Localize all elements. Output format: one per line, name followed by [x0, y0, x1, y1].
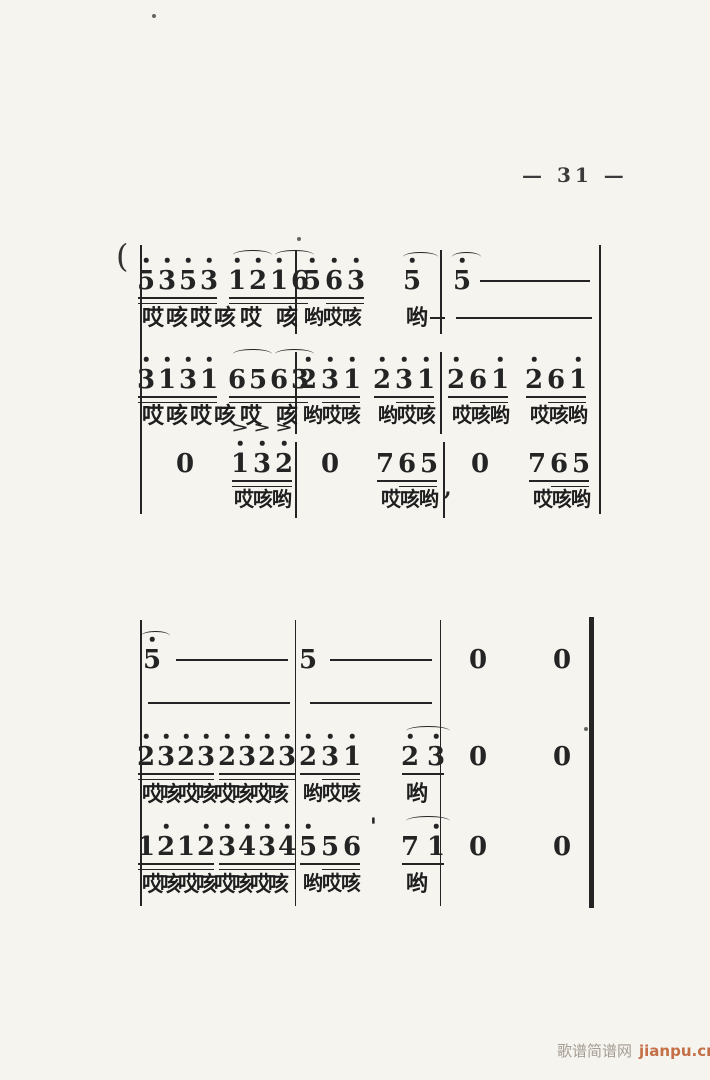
- octave-dot: [165, 357, 170, 362]
- note-digit: 6: [469, 367, 487, 393]
- octave-dot: [454, 357, 459, 362]
- rest-zero: 0: [471, 451, 489, 477]
- note-digit: 5: [179, 268, 197, 294]
- note-digit: 5: [572, 451, 590, 477]
- slur-arc: [233, 349, 272, 359]
- note-digit: 1: [137, 834, 155, 860]
- note-digit: 4: [278, 834, 296, 860]
- octave-dot: [498, 357, 503, 362]
- octave-dot: [424, 357, 429, 362]
- beam-underline: [448, 396, 508, 398]
- octave-dot: [576, 357, 581, 362]
- beam-underline: [304, 297, 364, 299]
- watermark-site-name: 歌谱简谱网: [557, 1042, 632, 1060]
- measure-barline: [295, 442, 297, 518]
- note-digit: 2: [275, 451, 293, 477]
- beam-underline: [138, 396, 217, 398]
- octave-dot: [165, 258, 170, 263]
- breath-mark: ,: [444, 477, 452, 499]
- beam-underline: [526, 396, 586, 398]
- octave-dot: [402, 357, 407, 362]
- note-digit: 5: [299, 834, 317, 860]
- note-digit: 3: [321, 367, 339, 393]
- tie-arc: [452, 252, 481, 262]
- lyric-extension-dash: [430, 317, 445, 319]
- beam-underline: [138, 297, 217, 299]
- note-extension-dash: [330, 659, 432, 661]
- note-digit: 2: [525, 367, 543, 393]
- note-digit: 1: [417, 367, 435, 393]
- note-digit: 1: [569, 367, 587, 393]
- lyric-text: 哎咳哟: [381, 488, 438, 510]
- slur-arc: [406, 816, 450, 826]
- note-digit: 5: [249, 367, 267, 393]
- note-digit: 3: [157, 744, 175, 770]
- lyric-text: 哎: [240, 306, 262, 330]
- accent-mark: >: [253, 421, 271, 435]
- note-digit: 7: [401, 834, 419, 860]
- note-digit: 1: [177, 834, 195, 860]
- system-barline: [589, 617, 594, 908]
- note-digit: 1: [228, 268, 246, 294]
- note-digit: 3: [278, 744, 296, 770]
- accent-mark: >: [275, 421, 293, 435]
- note-digit: 5: [420, 451, 438, 477]
- lyric-text: 哎咳哎咳: [142, 306, 238, 330]
- note-digit: 3: [179, 367, 197, 393]
- note-digit: 1: [491, 367, 509, 393]
- note-digit: 2: [373, 367, 391, 393]
- lyric-text: 哟哎咳: [303, 872, 360, 894]
- lyric-text: 哟: [406, 782, 428, 806]
- octave-dot: [207, 258, 212, 263]
- beam-underline: [232, 480, 292, 482]
- beam-underline: [402, 773, 444, 775]
- beam-underline: [374, 396, 434, 398]
- page-number: — 31 —: [522, 163, 628, 187]
- octave-dot: [245, 734, 250, 739]
- slur-arc: [275, 250, 314, 260]
- beam-underline: [529, 480, 589, 482]
- beam-underline: [138, 773, 214, 775]
- note-digit: 2: [299, 367, 317, 393]
- note-digit: 7: [528, 451, 546, 477]
- beam-underline: [219, 863, 295, 865]
- note-digit: 2: [218, 744, 236, 770]
- note-digit: 3: [347, 268, 365, 294]
- note-digit: 1: [427, 834, 445, 860]
- octave-dot: [310, 258, 315, 263]
- octave-dot: [260, 441, 265, 446]
- note-digit: 4: [238, 834, 256, 860]
- watermark: 歌谱简谱网jianpu.cn: [557, 1040, 710, 1061]
- beam-underline: [138, 863, 214, 865]
- note-digit: 2: [401, 744, 419, 770]
- tie-arc: [141, 631, 170, 641]
- note-digit: 6: [325, 268, 343, 294]
- note-digit: 5: [303, 268, 321, 294]
- note-digit: 6: [270, 367, 288, 393]
- lyric-extension-dash: [310, 702, 432, 704]
- note-digit: 5: [453, 268, 471, 294]
- note-digit: 1: [343, 744, 361, 770]
- note-digit: 3: [218, 834, 236, 860]
- note-digit: 3: [158, 268, 176, 294]
- octave-dot: [328, 734, 333, 739]
- beam-underline: [229, 297, 308, 299]
- octave-dot: [265, 734, 270, 739]
- note-digit: 2: [447, 367, 465, 393]
- note-digit: 2: [249, 268, 267, 294]
- octave-dot: [306, 357, 311, 362]
- octave-dot: [285, 824, 290, 829]
- octave-dot: [144, 734, 149, 739]
- octave-dot: [332, 258, 337, 263]
- note-digit: 5: [137, 268, 155, 294]
- note-digit: 3: [253, 451, 271, 477]
- note-extension-dash: [480, 280, 590, 282]
- beam-underline: [402, 863, 444, 865]
- accent-mark: >: [231, 421, 249, 435]
- octave-dot: [238, 441, 243, 446]
- ink-speck: [152, 14, 156, 18]
- slur-arc: [406, 726, 450, 736]
- octave-dot: [164, 734, 169, 739]
- lyric-text: 哟: [406, 306, 428, 330]
- note-digit: 6: [228, 367, 246, 393]
- measure-barline: [440, 352, 442, 434]
- lyric-text: 哟: [406, 872, 428, 896]
- note-digit: 3: [427, 744, 445, 770]
- note-digit: 2: [258, 744, 276, 770]
- tie-arc: [403, 252, 438, 262]
- beam-underline: [300, 863, 360, 865]
- octave-dot: [164, 824, 169, 829]
- octave-dot: [144, 357, 149, 362]
- note-digit: 2: [157, 834, 175, 860]
- lyric-text: 哟哎咳: [378, 404, 435, 426]
- beam-underline: [300, 396, 360, 398]
- beam-underline: [219, 773, 295, 775]
- note-digit: 5: [321, 834, 339, 860]
- lyric-text: 哟哎咳: [304, 306, 361, 328]
- lyric-text: 哎咳哎咳哎咳哎咳: [142, 782, 286, 805]
- lyric-extension-dash: [456, 317, 592, 319]
- ink-speck: [584, 727, 588, 731]
- octave-dot: [306, 824, 311, 829]
- octave-dot: [532, 357, 537, 362]
- note-digit: 6: [343, 834, 361, 860]
- octave-dot: [207, 357, 212, 362]
- note-digit: 5: [403, 268, 421, 294]
- lyric-text: 哎咳哎咳: [142, 404, 238, 428]
- beam-underline: [300, 773, 360, 775]
- rest-zero: 0: [553, 834, 571, 860]
- note-digit: 2: [197, 834, 215, 860]
- lyric-text: 哎咳哟: [452, 404, 509, 426]
- note-digit: 3: [395, 367, 413, 393]
- note-digit: 6: [550, 451, 568, 477]
- rest-zero: 0: [469, 744, 487, 770]
- octave-dot: [306, 734, 311, 739]
- lyric-text: 哟哎咳: [303, 782, 360, 804]
- octave-dot: [204, 824, 209, 829]
- rest-zero: 0: [553, 647, 571, 673]
- octave-dot: [225, 734, 230, 739]
- note-digit: 3: [197, 744, 215, 770]
- beam-underline: [229, 396, 308, 398]
- lyric-text: 哎咳哟: [234, 488, 291, 510]
- rest-zero: 0: [176, 451, 194, 477]
- ink-speck: [297, 237, 301, 241]
- beam-underline: [377, 480, 437, 482]
- octave-dot: [245, 824, 250, 829]
- rest-zero: 0: [553, 744, 571, 770]
- system-barline: [599, 245, 601, 514]
- octave-dot: [144, 258, 149, 263]
- octave-dot: [204, 734, 209, 739]
- note-digit: 1: [270, 268, 288, 294]
- rest-zero: 0: [469, 647, 487, 673]
- octave-dot: [350, 357, 355, 362]
- lyric-extension-dash: [148, 702, 290, 704]
- note-digit: 3: [321, 744, 339, 770]
- sheet-music-page: — 31 — (5353121656355哎咳哎咳哎咳哟哎咳哟313165632…: [0, 0, 710, 1080]
- lyric-text: 哎咳哟: [530, 404, 587, 426]
- note-digit: 3: [200, 268, 218, 294]
- octave-dot: [282, 441, 287, 446]
- lyric-text: 咳: [276, 306, 298, 330]
- octave-dot: [184, 734, 189, 739]
- octave-dot: [265, 824, 270, 829]
- note-digit: 5: [143, 647, 161, 673]
- octave-dot: [380, 357, 385, 362]
- note-digit: 5: [299, 647, 317, 673]
- octave-dot: [186, 357, 191, 362]
- note-digit: 2: [137, 744, 155, 770]
- note-digit: 2: [177, 744, 195, 770]
- note-digit: 1: [231, 451, 249, 477]
- note-digit: 1: [343, 367, 361, 393]
- measure-barline: [440, 250, 442, 334]
- octave-dot: [225, 824, 230, 829]
- lyric-text: 哎咳哎咳哎咳哎咳: [142, 872, 286, 895]
- breath-mark: ': [370, 816, 377, 838]
- system-brace: (: [116, 240, 128, 272]
- note-digit: 3: [258, 834, 276, 860]
- note-digit: 1: [158, 367, 176, 393]
- note-digit: 1: [200, 367, 218, 393]
- note-digit: 6: [547, 367, 565, 393]
- note-digit: 3: [137, 367, 155, 393]
- slur-arc: [233, 250, 272, 260]
- octave-dot: [186, 258, 191, 263]
- lyric-text: 哟哎咳: [303, 404, 360, 426]
- rest-zero: 0: [469, 834, 487, 860]
- octave-dot: [328, 357, 333, 362]
- note-digit: 6: [398, 451, 416, 477]
- rest-zero: 0: [321, 451, 339, 477]
- watermark-site-url: jianpu.cn: [639, 1042, 710, 1060]
- note-digit: 2: [299, 744, 317, 770]
- note-digit: 7: [376, 451, 394, 477]
- note-extension-dash: [176, 659, 288, 661]
- lyric-text: 哎咳哟: [533, 488, 590, 510]
- octave-dot: [350, 734, 355, 739]
- octave-dot: [285, 734, 290, 739]
- octave-dot: [354, 258, 359, 263]
- note-digit: 3: [238, 744, 256, 770]
